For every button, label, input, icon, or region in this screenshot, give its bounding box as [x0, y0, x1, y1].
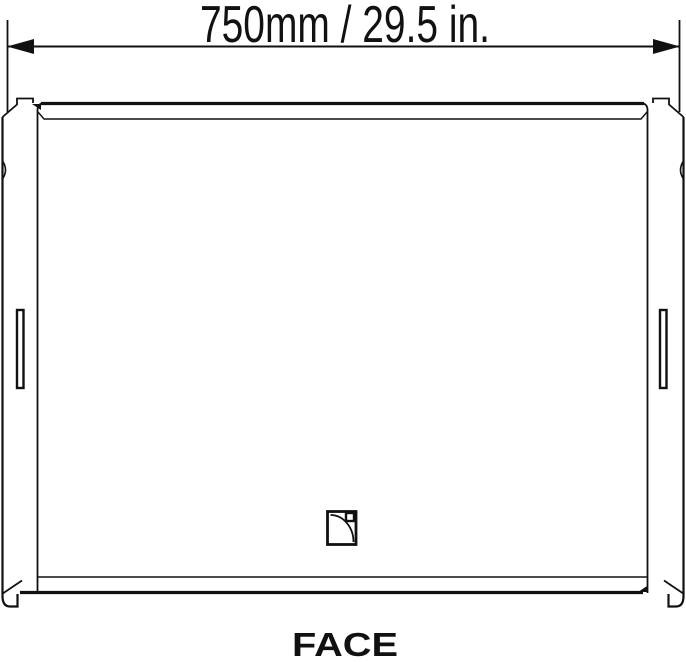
drawing-svg: 750mm / 29.5 in. FACE	[0, 0, 686, 662]
dimension-annotation: 750mm / 29.5 in.	[7, 0, 680, 112]
dimension-label: 750mm / 29.5 in.	[200, 0, 490, 54]
technical-drawing-face-view: 750mm / 29.5 in. FACE	[0, 0, 686, 662]
right-rigging-flange	[653, 99, 684, 607]
left-handle-slot	[17, 310, 24, 388]
right-flange-outer-edge	[669, 117, 684, 607]
right-handle-slot	[660, 310, 667, 388]
left-flange-outer-edge	[3, 117, 18, 607]
view-label: FACE	[292, 626, 398, 662]
top-left-weld-mark	[32, 104, 41, 110]
left-rigging-flange	[2, 99, 33, 607]
logo-small-square	[346, 513, 354, 521]
arrowhead-right-icon	[653, 39, 680, 54]
arrowhead-left-icon	[7, 39, 34, 54]
right-foot	[664, 581, 684, 595]
brand-logo-icon	[328, 512, 357, 545]
top-rim-line	[38, 112, 647, 119]
left-foot	[2, 581, 22, 595]
